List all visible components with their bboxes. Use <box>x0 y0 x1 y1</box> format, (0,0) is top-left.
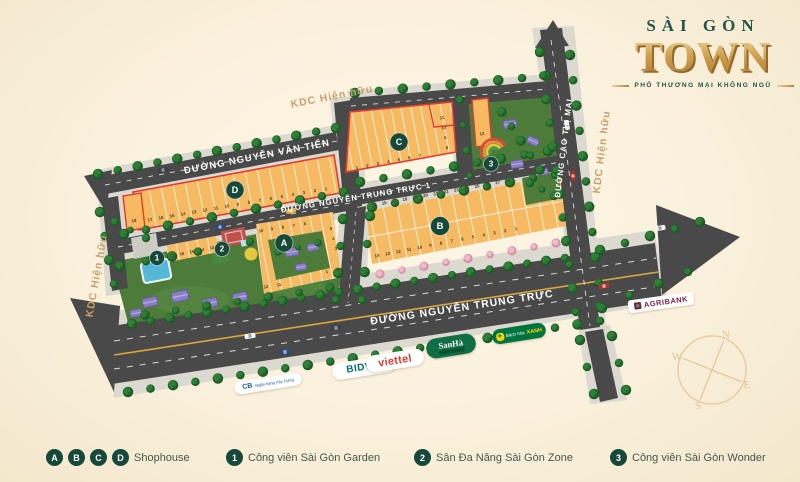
legend-circle-b: B <box>68 449 85 466</box>
bhx-pre-text: Bách hóa <box>505 330 525 338</box>
logo-ornament-left <box>612 85 629 87</box>
project-logo: SÀI GÒN TOWN PHỐ THƯƠNG MẠI KHÔNG NGỦ <box>612 16 794 89</box>
legend-garden-label: Công viên Sài Gòn Garden <box>248 452 380 464</box>
sport-court-yellow <box>245 248 258 261</box>
block-d-label: D <box>232 185 239 195</box>
legend-shophouse-label: Shophouse <box>134 452 190 464</box>
legend-circle-a: A <box>46 449 63 466</box>
bhx-figure-icon: ✦ <box>495 332 504 341</box>
masterplan-page: ĐƯỜNG NGUYỄN VĂN TIẾN ĐƯỜNG NGUYỄN TRUNG… <box>0 0 800 482</box>
compass: N W E S <box>670 328 753 412</box>
logo-town-text: TOWN <box>612 36 794 80</box>
compass-s: S <box>695 400 701 412</box>
block-a-label: A <box>281 238 288 248</box>
logo-tagline: PHỐ THƯƠNG MẠI KHÔNG NGỦ <box>634 82 771 89</box>
legend-wonder: 3 Công viên Sài Gòn Wonder <box>610 449 766 466</box>
legend-circle-d: D <box>112 449 129 466</box>
compass-n: N <box>722 329 730 341</box>
cb-logo-text: CB <box>242 383 253 391</box>
legend-garden: 1 Công viên Sài Gòn Garden <box>226 449 380 466</box>
legend-wonder-label: Công viên Sài Gòn Wonder <box>632 452 766 464</box>
bhx-xanh-text: XANH <box>526 327 542 335</box>
logo-ornament-right <box>777 85 794 87</box>
legend-circle-2: 2 <box>414 449 431 466</box>
compass-e: E <box>744 379 751 391</box>
marker-3: 3 <box>489 160 494 169</box>
marker-1: 1 <box>155 254 160 263</box>
legend-circle-3: 3 <box>610 449 627 466</box>
agribank-logo-icon <box>634 302 642 310</box>
area-label-kdc-right: KDC Hiện hữu <box>591 110 613 195</box>
viettel-logo-text: viettel <box>377 352 412 369</box>
block-b-label: B <box>437 221 444 232</box>
block-d-lot18 <box>123 193 145 231</box>
cb-sub-text: Ngân hàng Xây Dựng <box>255 377 294 388</box>
block-c-label: C <box>396 137 403 147</box>
logo-saigon-text: SÀI GÒN <box>612 16 794 36</box>
legend-zone: 2 Sân Đa Năng Sài Gòn Zone <box>414 449 573 466</box>
legend-circle-c: C <box>90 449 107 466</box>
compass-w: W <box>672 351 683 363</box>
marker-2: 2 <box>220 245 225 254</box>
legend-zone-label: Sân Đa Năng Sài Gòn Zone <box>436 452 573 464</box>
legend-shophouse: A B C D Shophouse <box>46 449 190 466</box>
legend-circle-1: 1 <box>226 449 243 466</box>
